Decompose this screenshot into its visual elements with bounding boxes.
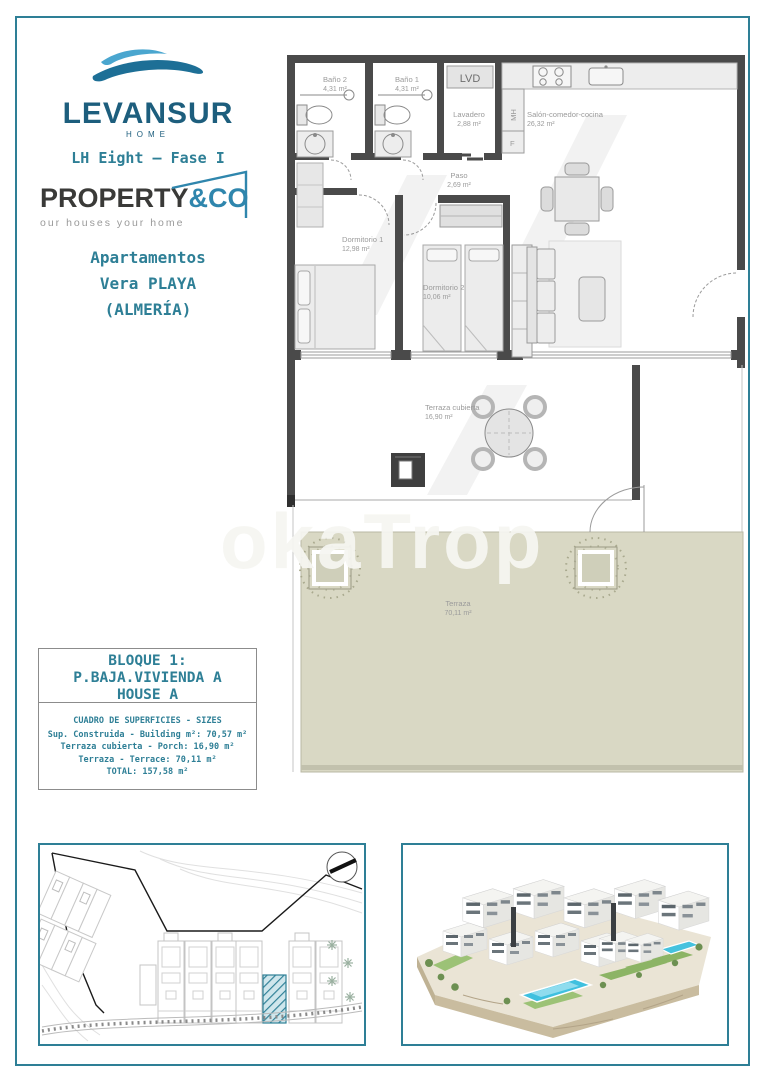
bbq-unit — [391, 453, 425, 487]
coffee-table — [579, 277, 605, 321]
terrace-lawn — [301, 532, 743, 772]
brand-sub: HOME — [38, 130, 258, 139]
left-building-cluster — [40, 871, 116, 982]
render-image — [403, 845, 727, 1044]
dorm2-furniture — [423, 205, 503, 351]
room-label-bano1: Baño 1 — [395, 75, 419, 84]
floor-plan: MH F — [287, 55, 745, 780]
dining-table-icon — [555, 177, 599, 221]
room-area-salon: 26,32 m² — [527, 121, 555, 128]
location-line-3: (ALMERÍA) — [38, 297, 258, 323]
agency-name-primary: PROPERTY — [40, 183, 189, 213]
kitchen-counter — [502, 63, 737, 153]
stove-icon — [533, 66, 571, 87]
sizes-title: CUADRO DE SUPERFICIES - SIZES — [39, 715, 256, 728]
room-label-paso: Paso — [450, 171, 467, 180]
site-plan-drawing — [40, 845, 364, 1044]
sizes-table: CUADRO DE SUPERFICIES - SIZES Sup. Const… — [38, 702, 257, 790]
location-line-2: Vera PLAYA — [38, 271, 258, 297]
room-area-paso: 2,69 m² — [447, 182, 471, 189]
room-area-dorm1: 12,98 m² — [342, 246, 370, 253]
room-label-lavadero: Lavadero — [453, 110, 485, 119]
location-block: Apartamentos Vera PLAYA (ALMERÍA) — [38, 245, 258, 323]
room-label-dorm2: Dormitorio 2 — [423, 283, 464, 292]
room-label-porch: Terraza cubierta — [425, 403, 480, 412]
room-label-bano2: Baño 2 — [323, 75, 347, 84]
sink-icon — [589, 68, 623, 85]
brochure-page: { "colors":{"accent_teal":"#2e7f96","bra… — [0, 0, 765, 1080]
appliance-label-f: F — [510, 139, 515, 148]
roof-line-icon — [170, 168, 262, 220]
header: LEVANSUR HOME LH Eight – Fase I PROPERTY… — [38, 46, 258, 323]
living-furniture — [527, 163, 621, 347]
bath1-fixtures — [375, 90, 432, 157]
unit-title-line-1: BLOQUE 1: — [39, 653, 256, 670]
agency-logo: PROPERTY&CO our houses your home — [38, 183, 258, 229]
brand-name: LEVANSUR — [38, 97, 258, 131]
room-area-porch: 16,90 m² — [425, 414, 453, 421]
room-label-lvd: LVD — [460, 73, 481, 85]
sizes-row-porch: Terraza cubierta - Porch: 16,90 m² — [39, 741, 256, 754]
room-label-salon: Salón-comedor-cocina — [527, 110, 604, 119]
sizes-row-building: Sup. Construida - Building m²: 70,57 m² — [39, 729, 256, 742]
room-area-lavadero: 2,88 m² — [457, 121, 481, 128]
terrace-bottom-edge — [301, 765, 743, 770]
sizes-row-total: TOTAL: 157,58 m² — [39, 766, 256, 779]
room-area-bano1: 4,31 m² — [395, 86, 419, 93]
location-line-1: Apartamentos — [38, 245, 258, 271]
planter-2 — [566, 538, 626, 598]
bath2-fixtures — [297, 90, 354, 157]
project-name: LH Eight – Fase I — [38, 149, 258, 167]
appliance-label-mh: MH — [509, 109, 518, 121]
site-plan-panel — [38, 843, 366, 1046]
planter-1 — [300, 538, 360, 598]
room-area-dorm2: 10,06 m² — [423, 294, 451, 301]
north-indicator — [327, 852, 357, 882]
levansur-waves-icon — [83, 46, 213, 90]
room-label-terrace: Terraza — [445, 599, 471, 608]
room-label-dorm1: Dormitorio 1 — [342, 235, 383, 244]
unit-title-line-2: P.BAJA.VIVIENDA A — [39, 670, 256, 687]
unit-title-box: BLOQUE 1: P.BAJA.VIVIENDA A HOUSE A — [38, 648, 257, 710]
sofa-icon — [527, 247, 537, 343]
sizes-row-terrace: Terraza - Terrace: 70,11 m² — [39, 754, 256, 767]
render-panel — [401, 843, 729, 1046]
room-area-terrace: 70,11 m² — [444, 610, 472, 617]
room-area-bano2: 4,31 m² — [323, 86, 347, 93]
